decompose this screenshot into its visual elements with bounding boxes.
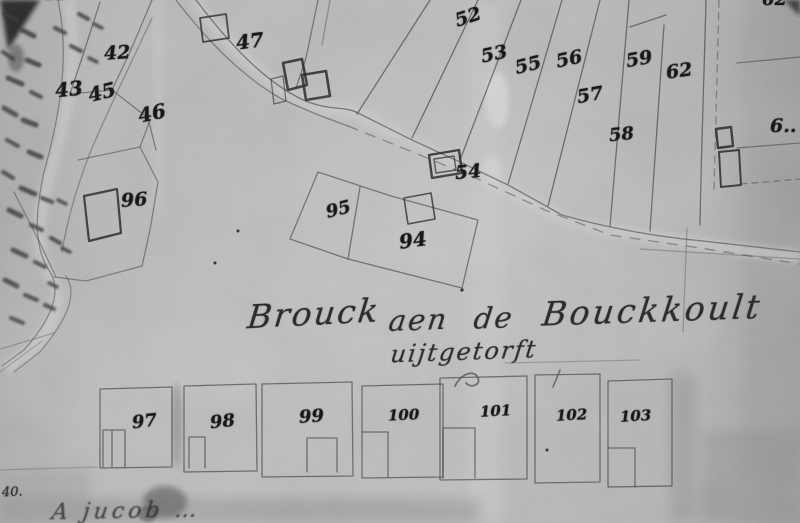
parcel-label-56: 56 — [554, 47, 584, 71]
parcel-label-101: 101 — [480, 403, 512, 420]
map-photo: 41 42 42 43 45 46 47 52 53 55 56 57 58 5… — [0, 0, 800, 523]
parcel-label-54: 54 — [454, 162, 482, 183]
parcel-label-98: 98 — [209, 412, 236, 433]
area-label-line2-uijtgetorft: uijtgetorft — [389, 337, 539, 366]
area-label-word-brouck: Brouck — [246, 294, 382, 334]
parcel-label-45: 45 — [86, 79, 118, 105]
parcel-label-100: 100 — [388, 407, 420, 423]
parcel-label-103: 103 — [620, 408, 652, 425]
margin-number-40: 40. — [2, 486, 23, 500]
area-label-word-aen: aen — [387, 305, 450, 336]
bottom-edge-fragment: A jucob … — [50, 500, 202, 523]
parcel-label-42: 42 — [103, 43, 131, 64]
parcel-label-41-cut: 41 — [42, 0, 66, 4]
parcel-label-6-right: 6.. — [770, 117, 796, 136]
parcel-label-102: 102 — [556, 407, 588, 424]
parcel-label-96: 96 — [120, 190, 148, 211]
parcel-label-53: 53 — [479, 42, 509, 66]
parcel-label-58: 58 — [608, 125, 635, 146]
parcel-label-43: 43 — [54, 78, 84, 101]
area-label-word-bouckkoult: Bouckkoult — [540, 290, 764, 331]
parcel-label-42-cut: 42 — [95, 0, 119, 3]
parcel-label-94: 94 — [398, 228, 428, 252]
parcel-label-97: 97 — [131, 412, 158, 433]
parcel-label-46: 46 — [136, 100, 167, 125]
parcel-label-62: 62 — [665, 60, 694, 82]
parcel-label-59: 59 — [625, 48, 654, 71]
parcel-label-99: 99 — [298, 407, 324, 427]
parcel-label-62-cut: 62 — [762, 0, 787, 9]
parcel-label-47: 47 — [235, 29, 265, 52]
parcel-label-57: 57 — [576, 84, 605, 107]
area-label-word-de: de — [472, 303, 516, 333]
